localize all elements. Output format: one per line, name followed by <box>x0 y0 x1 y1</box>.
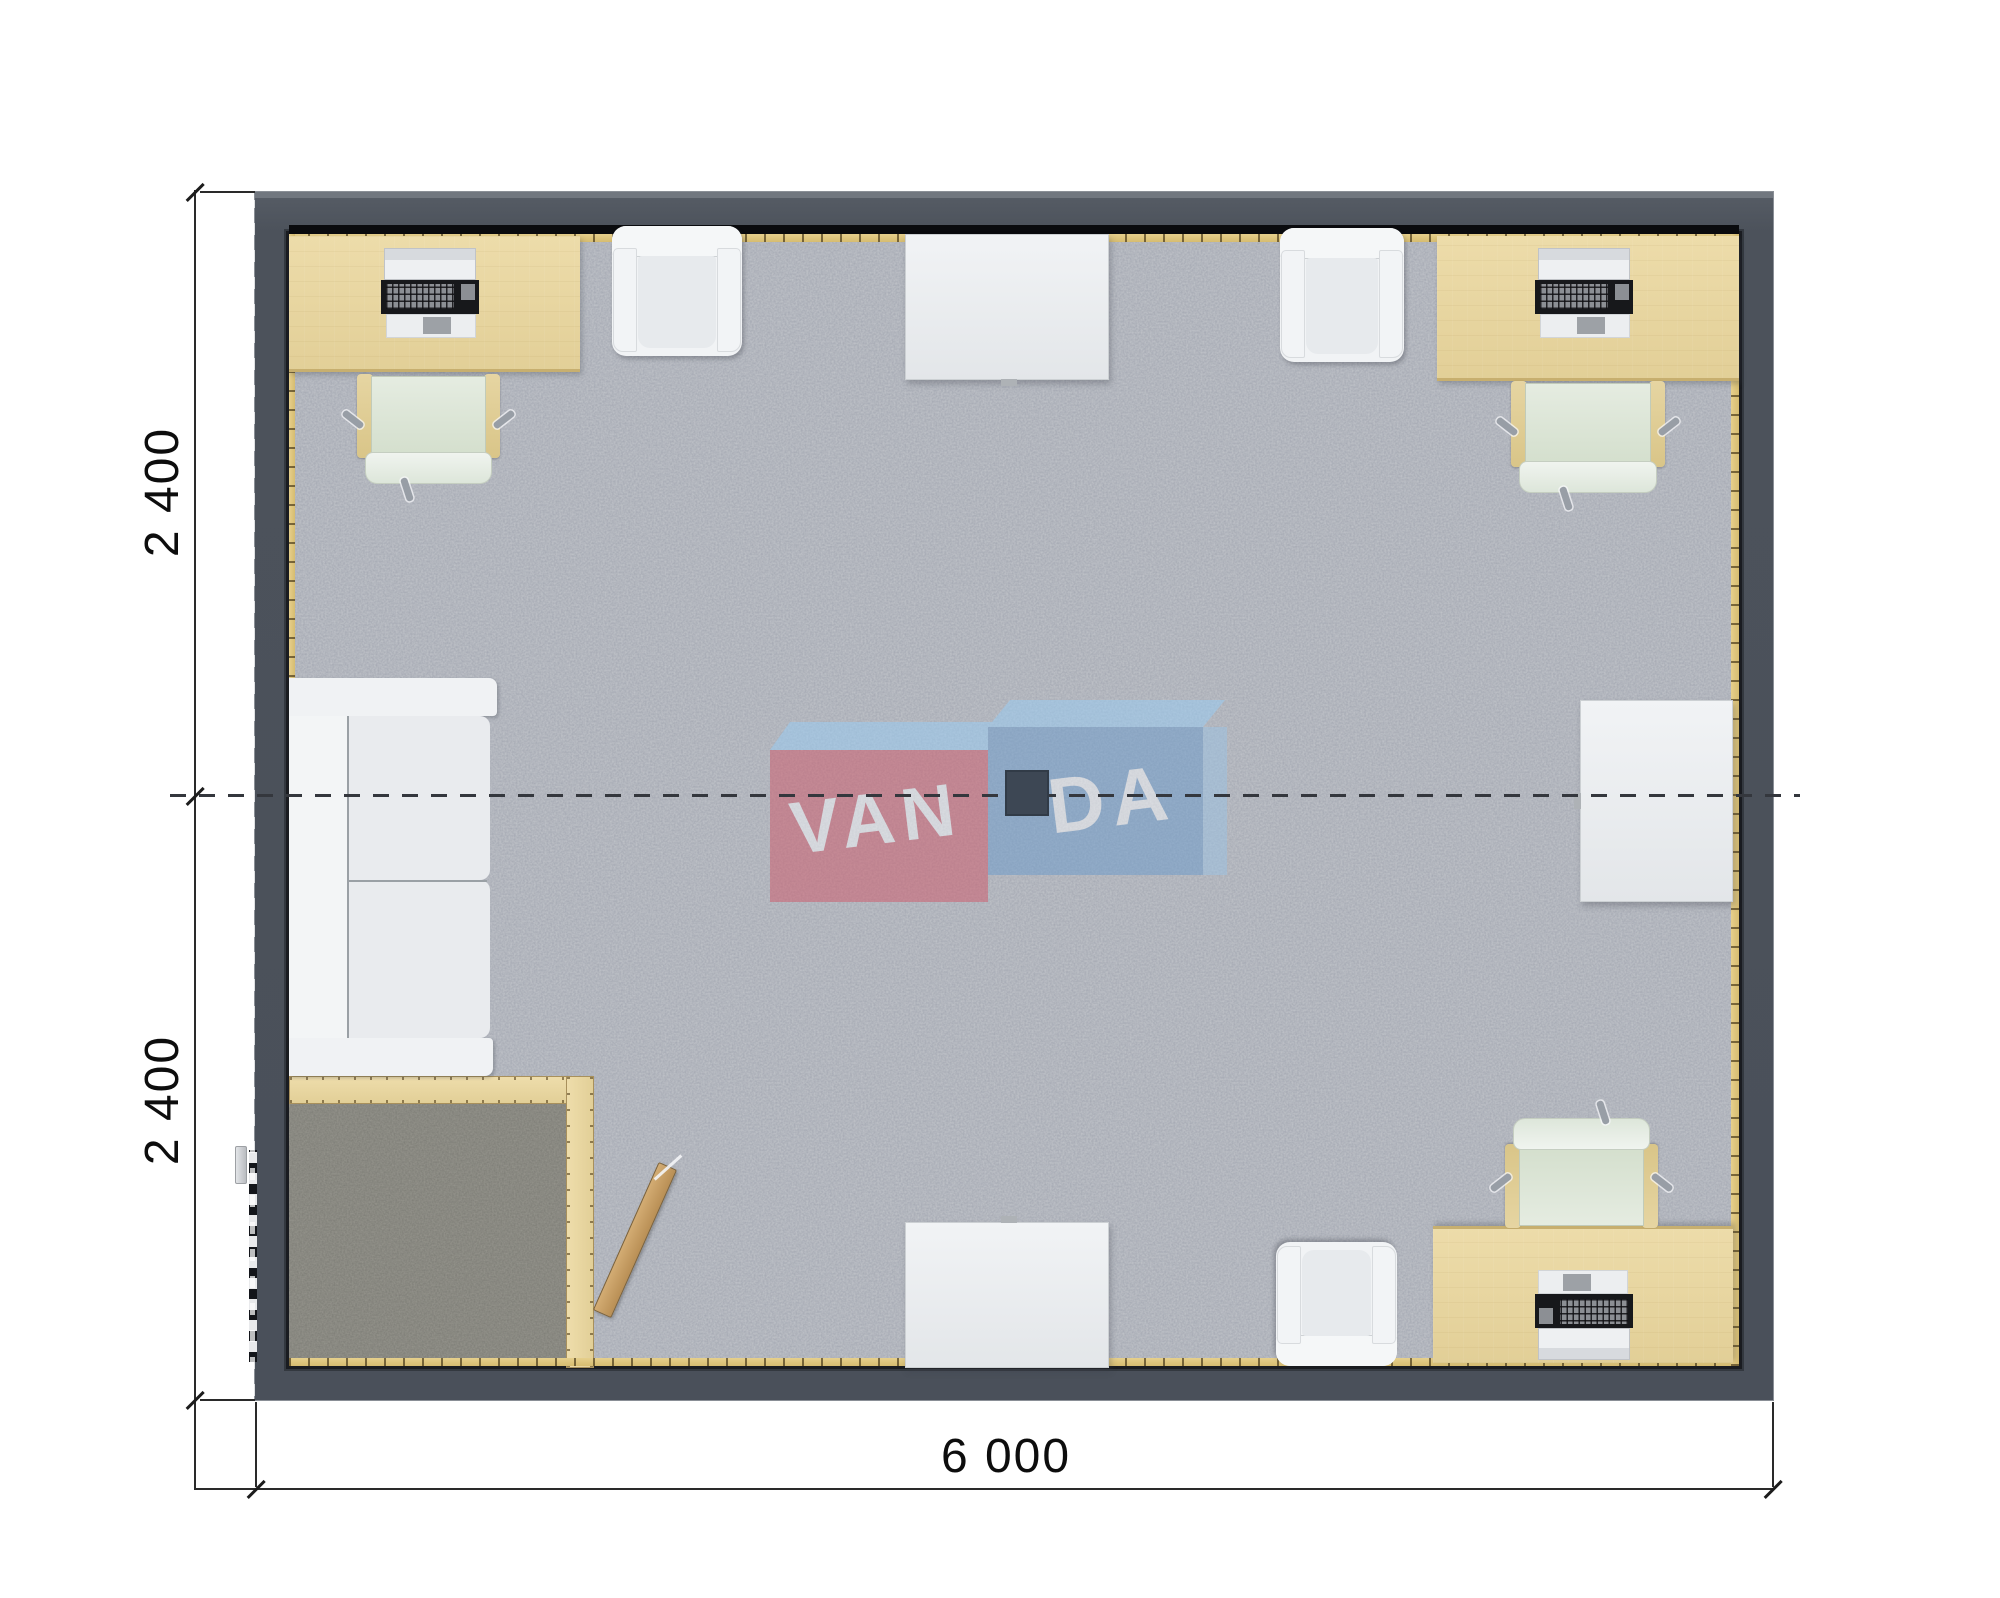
computer-top-right <box>1538 248 1630 336</box>
extension-line-bottom <box>200 1399 255 1401</box>
keyboard-icon <box>1535 1294 1633 1328</box>
extension-line-right-drop <box>1772 1402 1774 1487</box>
table-right-middle <box>1580 700 1733 902</box>
computer-bottom-right <box>1538 1272 1630 1360</box>
vestibule-wall-right <box>566 1076 594 1368</box>
armchair-top-right <box>1280 228 1404 362</box>
mousepad-icon <box>1577 317 1605 334</box>
logo-box-side-face <box>1203 727 1227 875</box>
mouse-tray <box>386 314 476 338</box>
computer-top-left <box>384 248 476 336</box>
logo-text-da: DA <box>1043 747 1180 853</box>
mouse-tray <box>1538 1270 1628 1294</box>
dimension-line-horizontal <box>194 1488 1774 1490</box>
armchair-bottom-right <box>1276 1242 1397 1366</box>
sofa-armrest-top <box>289 678 497 716</box>
office-chair-top-right <box>1511 381 1665 493</box>
table-bottom-center <box>905 1222 1109 1368</box>
extension-line-left-drop <box>255 1402 257 1487</box>
vestibule-carpet-texture <box>289 1102 566 1358</box>
dimension-label-width: 6 000 <box>896 1431 1116 1483</box>
vestibule-wall-top <box>289 1076 594 1104</box>
wall-floor-gap <box>289 225 1739 234</box>
sofa-cushion <box>347 716 490 880</box>
logo-box-top-face <box>988 700 1225 727</box>
module-centerline <box>170 794 1800 797</box>
sofa-cushion <box>347 880 490 1038</box>
mouse-tray <box>1540 314 1630 338</box>
door-handle-icon <box>235 1146 247 1184</box>
mousepad-icon <box>1563 1274 1591 1291</box>
monitor-icon <box>384 248 476 280</box>
office-chair-bottom-right <box>1505 1118 1658 1228</box>
armchair-top-left <box>612 226 742 356</box>
wall-cladding-marks <box>250 200 255 1396</box>
office-chair-top-left <box>357 374 500 484</box>
keyboard-icon <box>381 280 479 314</box>
keyboard-icon <box>1535 280 1633 314</box>
extension-line-top <box>200 191 255 193</box>
monitor-icon <box>1538 248 1630 280</box>
floor-plan-canvas: VAN DA 2 400 2 400 6 000 <box>0 0 2000 1598</box>
dimension-label-height-bottom: 2 400 <box>137 990 189 1210</box>
logo-box-top-face <box>770 722 1008 750</box>
mousepad-icon <box>423 317 451 334</box>
vestibule-floor <box>289 1102 566 1358</box>
dimension-label-height-top: 2 400 <box>137 382 189 602</box>
sofa-backrest <box>289 716 347 1038</box>
table-top-center <box>905 234 1109 380</box>
ceiling-lamp-icon <box>1005 770 1049 816</box>
sofa-left-wall <box>289 678 497 1076</box>
sofa-armrest-bottom <box>289 1038 493 1076</box>
vanda-watermark-logo: VAN DA <box>760 692 1240 912</box>
dimension-line-vertical <box>194 190 196 1490</box>
monitor-icon <box>1538 1328 1630 1360</box>
